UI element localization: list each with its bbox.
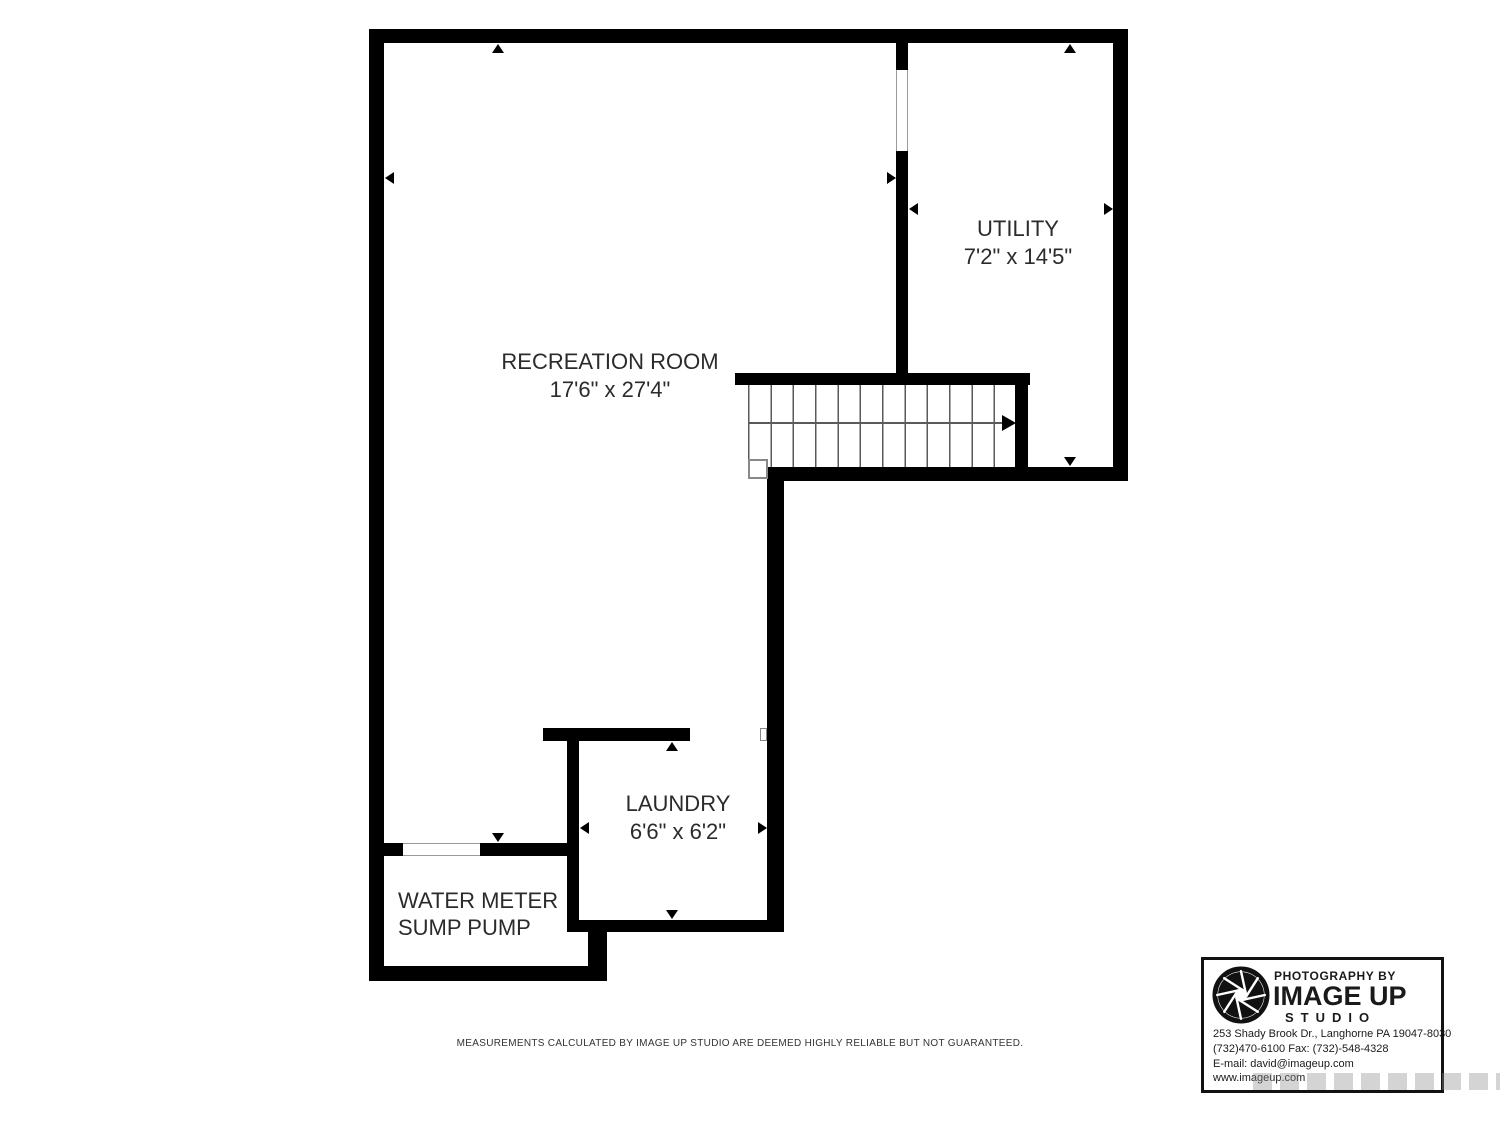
- door-opening-utility: [896, 70, 908, 151]
- room-dimensions: 6'6" x 6'2": [578, 818, 778, 846]
- measure-arrow-down-icon: [492, 833, 504, 842]
- wall-recreation-right: [767, 467, 784, 932]
- logo-email: E-mail: david@imageup.com: [1213, 1058, 1354, 1070]
- wall-bottom-right-section: [767, 467, 1128, 481]
- measurements-disclaimer: MEASUREMENTS CALCULATED BY IMAGE UP STUD…: [360, 1038, 1120, 1049]
- wall-utility-divider-upper: [896, 43, 908, 70]
- wall-laundry-top: [543, 728, 690, 741]
- door-opening-watermeter: [403, 843, 480, 856]
- measure-arrow-left-icon: [385, 172, 394, 184]
- room-name: WATER METER: [398, 887, 558, 914]
- camera-aperture-icon: [1211, 965, 1271, 1025]
- logo-brand-subtitle: STUDIO: [1285, 1010, 1376, 1025]
- room-dimensions: 17'6" x 27'4": [430, 376, 790, 404]
- wall-exterior-top: [369, 29, 1128, 43]
- measure-arrow-up-icon: [666, 742, 678, 751]
- utility-room-label: UTILITY 7'2" x 14'5": [918, 215, 1118, 271]
- measure-arrow-up-icon: [1064, 44, 1076, 53]
- room-name: LAUNDRY: [578, 790, 778, 818]
- wall-watermeter-top-right: [480, 843, 579, 856]
- measure-arrow-right-icon: [887, 172, 896, 184]
- laundry-room-label: LAUNDRY 6'6" x 6'2": [578, 790, 778, 846]
- laundry-door-jamb: [760, 728, 767, 741]
- floor-plan-page: RECREATION ROOM 17'6" x 27'4" UTILITY 7'…: [0, 0, 1500, 1125]
- stairs-newel-box: [748, 459, 768, 479]
- wall-watermeter-bottom: [369, 966, 607, 981]
- room-name: SUMP PUMP: [398, 914, 558, 941]
- room-name: UTILITY: [918, 215, 1118, 243]
- room-name: RECREATION ROOM: [430, 348, 790, 376]
- measure-arrow-left-icon: [909, 203, 918, 215]
- watermeter-room-label: WATER METER SUMP PUMP: [398, 887, 558, 941]
- measure-arrow-down-icon: [666, 910, 678, 919]
- logo-phone-fax: (732)470-6100 Fax: (732)-548-4328: [1213, 1043, 1389, 1055]
- recreation-room-label: RECREATION ROOM 17'6" x 27'4": [430, 348, 790, 404]
- stairs-direction-arrow-icon: [1002, 415, 1016, 431]
- stairs-direction-line: [748, 422, 1004, 424]
- faint-watermark-artifact: [1253, 1073, 1500, 1090]
- logo-brand-name: IMAGE UP: [1273, 981, 1407, 1012]
- room-dimensions: 7'2" x 14'5": [918, 243, 1118, 271]
- measure-arrow-down-icon: [1064, 457, 1076, 466]
- wall-laundry-watermeter-connector: [588, 920, 607, 981]
- measure-arrow-up-icon: [492, 44, 504, 53]
- measure-arrow-right-icon: [1104, 203, 1113, 215]
- logo-address: 253 Shady Brook Dr., Langhorne PA 19047-…: [1213, 1028, 1451, 1040]
- wall-utility-divider-lower: [896, 151, 908, 373]
- wall-watermeter-top-left: [369, 843, 403, 856]
- wall-exterior-left: [369, 29, 384, 981]
